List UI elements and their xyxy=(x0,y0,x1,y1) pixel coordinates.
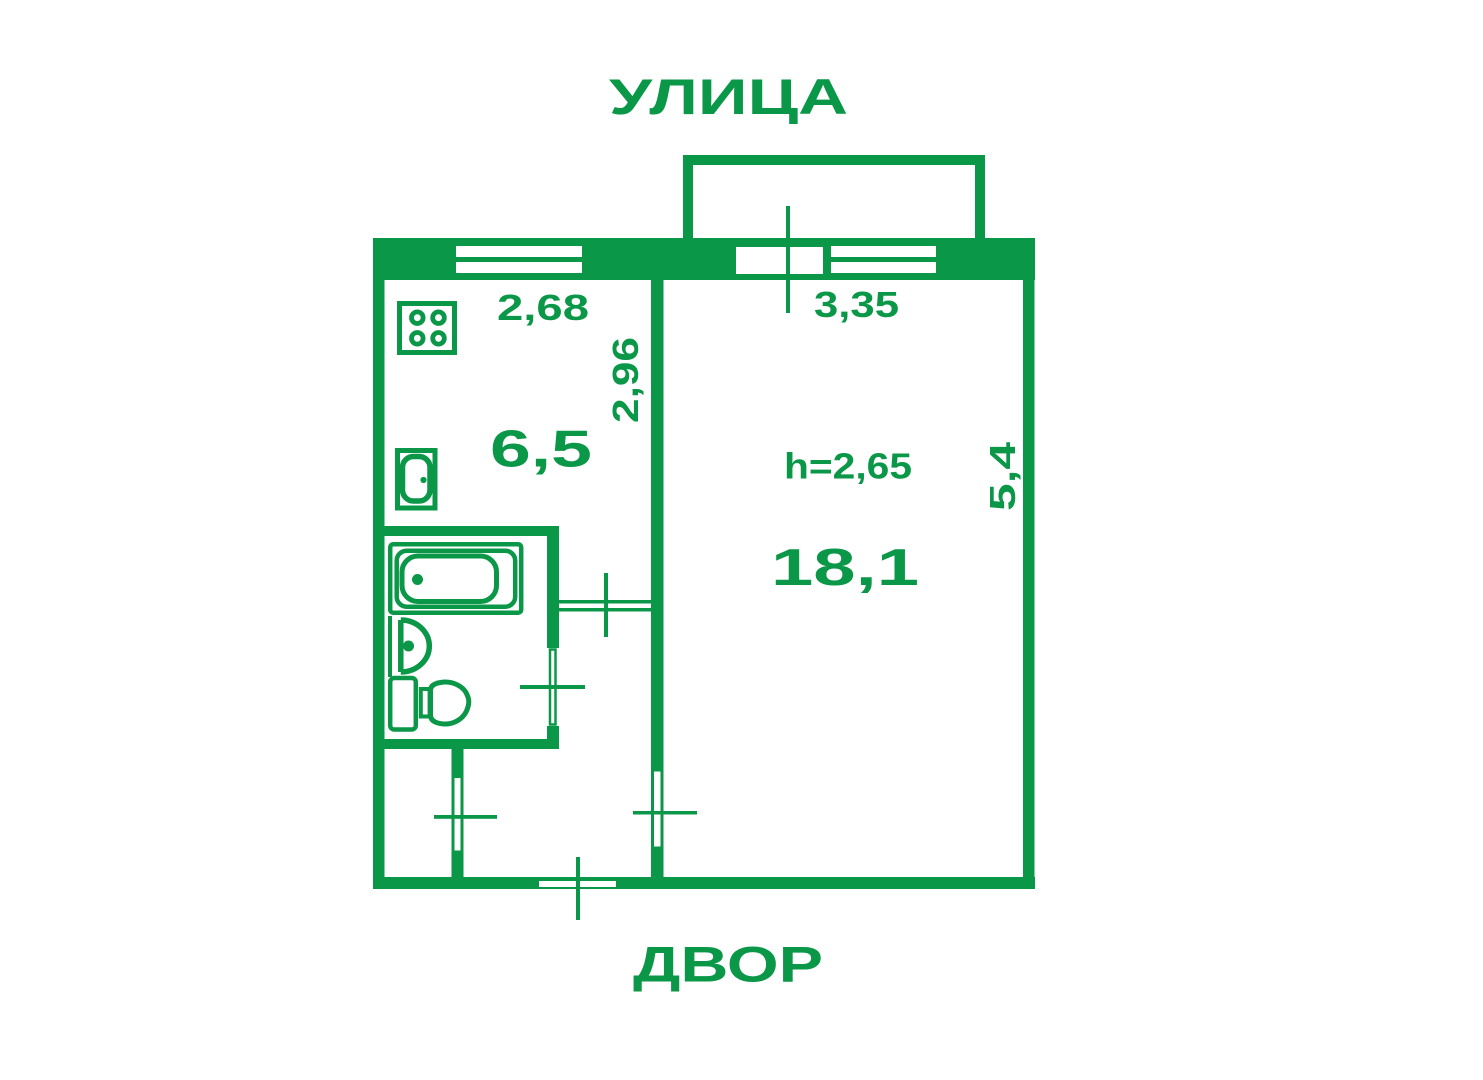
svg-text:5,4: 5,4 xyxy=(982,442,1023,511)
svg-text:h=2,65: h=2,65 xyxy=(784,446,912,487)
svg-text:ДВОР: ДВОР xyxy=(633,937,823,993)
svg-text:3,35: 3,35 xyxy=(814,284,899,325)
svg-text:18,1: 18,1 xyxy=(771,539,919,597)
svg-text:УЛИЦА: УЛИЦА xyxy=(609,69,848,125)
svg-text:6,5: 6,5 xyxy=(490,421,592,479)
svg-text:2,96: 2,96 xyxy=(605,337,646,423)
svg-text:2,68: 2,68 xyxy=(497,287,589,328)
